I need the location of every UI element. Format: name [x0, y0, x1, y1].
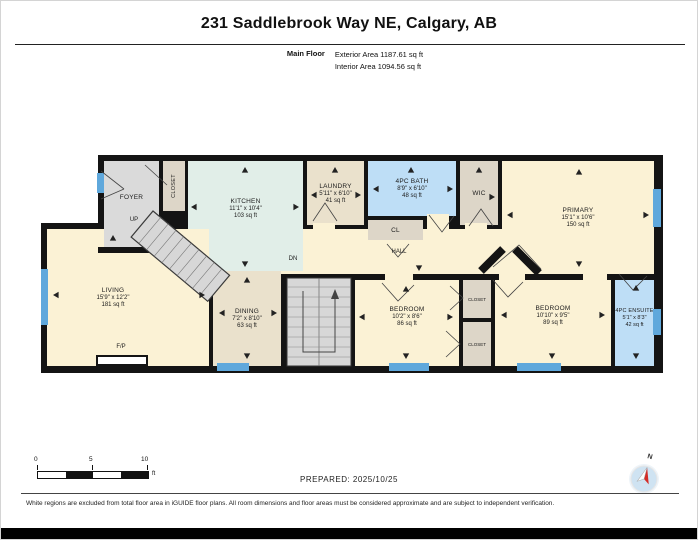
door-gap-bedroom2	[499, 273, 525, 281]
room-primary-dims: 15'1" x 10'6"	[562, 215, 595, 221]
room-dining-dims: 7'2" x 8'10"	[232, 316, 262, 322]
room-living-area: 181 sq ft	[101, 302, 124, 308]
room-foyer-name: FOYER	[120, 194, 143, 201]
room-closet1: CLOSET	[463, 280, 491, 318]
window-bedroom2	[517, 363, 561, 371]
room-closet1-name: CLOSET	[468, 297, 486, 302]
room-bedroom1-area: 86 sq ft	[397, 321, 417, 327]
room-dining-name: DINING	[235, 308, 259, 315]
wall-foyer-living	[98, 247, 149, 253]
room-laundry: LAUNDRY 5'11" x 6'10" 41 sq ft	[307, 161, 364, 225]
room-ensuite-dims: 5'1" x 8'3"	[622, 315, 646, 321]
window-bedroom1	[389, 363, 429, 371]
stairs-up-label: UP	[123, 217, 145, 223]
room-hall-label: HALL	[381, 249, 417, 255]
room-foyer: FOYER	[104, 161, 159, 247]
door-gap-bedroom1	[385, 273, 413, 281]
room-closet2: CLOSET	[463, 322, 491, 366]
room-closet2-name: CLOSET	[468, 342, 486, 347]
floorplan: KITCHEN 11'1" x 10'4" 103 sq ft DINING 7…	[1, 1, 698, 540]
room-living-name: LIVING	[102, 287, 125, 294]
room-bedroom2: BEDROOM 10'10" x 9'5" 89 sq ft	[495, 280, 611, 366]
window-primary	[653, 189, 661, 227]
room-wic-name: WIC	[472, 190, 485, 197]
scale-tickmark	[92, 465, 93, 470]
room-bedroom1-name: BEDROOM	[390, 306, 425, 313]
door-gap-wic	[465, 223, 487, 233]
room-bedroom2-area: 89 sq ft	[543, 320, 563, 326]
room-kitchen-area: 103 sq ft	[234, 213, 257, 219]
room-dining-area: 63 sq ft	[237, 323, 257, 329]
room-kitchen-dims: 11'1" x 10'4"	[229, 206, 261, 212]
room-cl: CL	[368, 220, 423, 240]
fireplace	[96, 355, 148, 366]
room-dining: DINING 7'2" x 8'10" 63 sq ft	[213, 271, 281, 366]
room-laundry-name: LAUNDRY	[319, 183, 351, 190]
room-ensuite-area: 42 sq ft	[625, 322, 643, 328]
room-living-dims: 15'9" x 12'2"	[97, 295, 130, 301]
door-gap-bath	[427, 214, 449, 231]
room-foyer-closet: CLOSET	[163, 161, 185, 211]
window-dining	[217, 363, 249, 371]
room-bedroom1-dims: 10'2" x 8'6"	[392, 314, 422, 320]
room-bath-area: 48 sq ft	[402, 193, 422, 199]
disclaimer-text: White regions are excluded from total fl…	[26, 500, 626, 507]
room-bedroom1: BEDROOM 10'2" x 8'6" 86 sq ft	[355, 280, 459, 366]
room-kitchen-name: KITCHEN	[231, 198, 261, 205]
room-wic: WIC	[460, 161, 498, 225]
floorplan-page: 231 Saddlebrook Way NE, Calgary, AB Main…	[0, 0, 698, 540]
fireplace-label: F/P	[101, 344, 141, 350]
window-living	[41, 269, 48, 325]
door-gap-laundry	[313, 223, 335, 233]
scale-tick-5: 5	[89, 456, 93, 463]
room-laundry-area: 41 sq ft	[326, 198, 346, 204]
room-laundry-dims: 5'11" x 6'10"	[319, 191, 351, 197]
door-gap-ensuite	[583, 273, 607, 281]
room-bath: 4PC BATH 8'9" x 6'10" 48 sq ft	[368, 161, 456, 216]
stairs-down-label: DN	[283, 256, 303, 262]
window-foyer	[97, 173, 104, 193]
footer-divider	[21, 493, 679, 494]
room-bath-dims: 8'9" x 6'10"	[397, 186, 427, 192]
room-primary-area: 150 sq ft	[566, 222, 589, 228]
room-bedroom2-dims: 10'10" x 9'5"	[537, 313, 570, 319]
room-ensuite: 4PC ENSUITE 5'1" x 8'3" 42 sq ft	[615, 280, 654, 366]
room-primary: PRIMARY 15'1" x 10'6" 150 sq ft	[502, 161, 654, 274]
scale-tickmark	[37, 465, 38, 470]
window-ensuite	[653, 309, 661, 335]
prepared-date: PREPARED: 2025/10/25	[1, 475, 697, 484]
room-foyer-closet-name: CLOSET	[171, 174, 177, 198]
room-bedroom2-name: BEDROOM	[536, 305, 571, 312]
compass-north-label: N	[646, 453, 653, 461]
room-ensuite-name: 4PC ENSUITE	[615, 308, 653, 314]
room-cl-name: CL	[391, 227, 400, 234]
scale-tickmark	[147, 465, 148, 470]
scale-tick-10: 10	[141, 456, 148, 463]
bottom-bar	[1, 528, 698, 540]
room-bath-name: 4PC BATH	[396, 178, 429, 185]
room-primary-name: PRIMARY	[563, 207, 594, 214]
scale-tick-0: 0	[34, 456, 38, 463]
